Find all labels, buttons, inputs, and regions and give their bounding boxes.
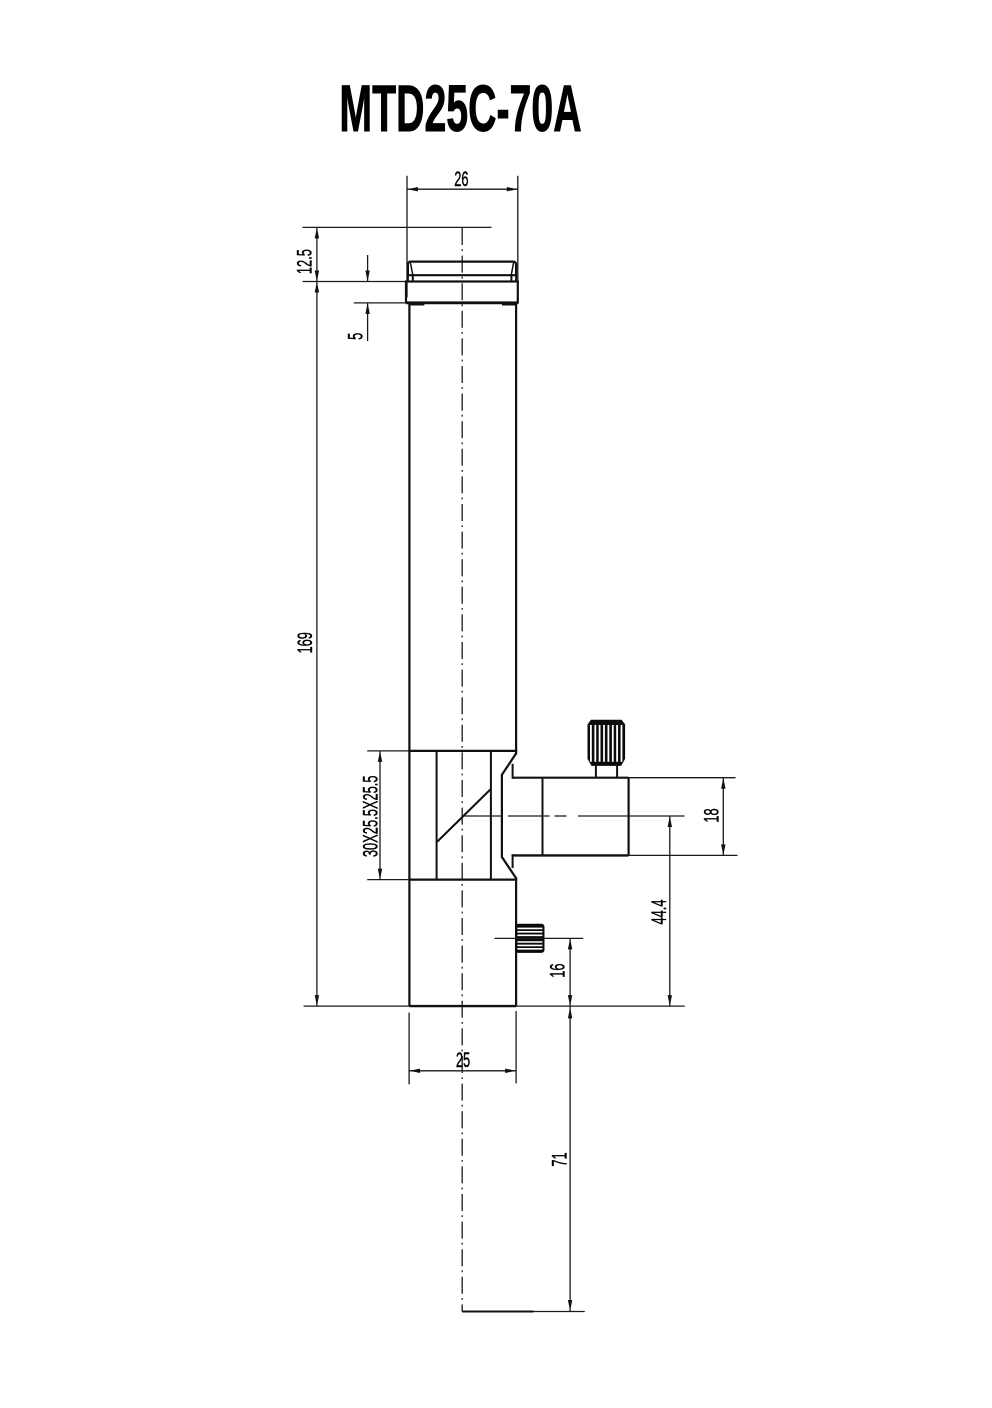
svg-text:44.4: 44.4: [647, 899, 671, 924]
svg-text:18: 18: [699, 808, 723, 822]
svg-text:25: 25: [456, 1048, 470, 1072]
svg-text:71: 71: [547, 1152, 571, 1166]
svg-text:169: 169: [293, 632, 317, 654]
svg-text:MTD25C-70A: MTD25C-70A: [339, 71, 581, 145]
svg-text:30X25.5X25.5: 30X25.5X25.5: [358, 775, 382, 857]
svg-text:16: 16: [545, 963, 569, 977]
svg-text:12.5: 12.5: [292, 249, 316, 274]
svg-text:5: 5: [343, 333, 367, 340]
svg-text:26: 26: [454, 166, 468, 190]
